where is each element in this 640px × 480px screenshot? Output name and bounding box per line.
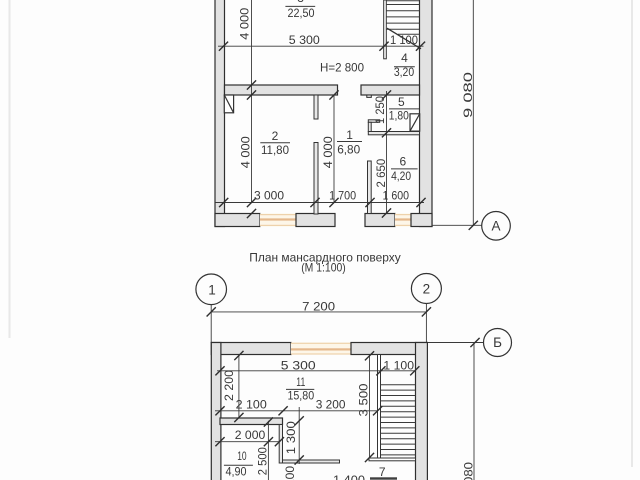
svg-text:3: 3 (297, 0, 304, 5)
svg-text:1 100: 1 100 (390, 33, 418, 47)
svg-text:9 080: 9 080 (461, 72, 475, 118)
svg-text:Б: Б (493, 335, 502, 350)
svg-text:3 200: 3 200 (316, 398, 346, 412)
svg-text:7: 7 (379, 465, 386, 479)
svg-text:4: 4 (401, 51, 408, 65)
svg-text:9 080: 9 080 (461, 462, 475, 480)
svg-text:3,20: 3,20 (394, 65, 415, 79)
svg-text:1,80: 1,80 (389, 108, 409, 122)
svg-text:1 100: 1 100 (383, 358, 414, 372)
svg-text:2 500: 2 500 (256, 447, 270, 475)
svg-text:1 200: 1 200 (283, 466, 297, 480)
svg-text:4 000: 4 000 (238, 7, 252, 39)
svg-text:2: 2 (423, 281, 431, 296)
svg-text:1: 1 (346, 128, 353, 142)
svg-text:1 600: 1 600 (383, 188, 410, 202)
svg-text:2 200: 2 200 (222, 370, 236, 401)
svg-text:3 000: 3 000 (254, 188, 284, 202)
svg-text:2 100: 2 100 (236, 398, 268, 412)
svg-text:5: 5 (398, 95, 405, 109)
svg-text:А: А (491, 219, 500, 234)
svg-text:1 700: 1 700 (329, 188, 356, 202)
svg-text:2 000: 2 000 (235, 428, 266, 442)
svg-text:11: 11 (296, 375, 305, 389)
svg-text:1 400: 1 400 (333, 473, 365, 480)
svg-text:3 500: 3 500 (357, 383, 371, 416)
svg-text:4 000: 4 000 (321, 136, 335, 168)
svg-text:22,50: 22,50 (288, 6, 315, 20)
svg-text:10: 10 (237, 449, 247, 463)
svg-text:11,80: 11,80 (261, 143, 289, 157)
svg-text:1 300: 1 300 (284, 421, 298, 454)
svg-text:Н=2 800: Н=2 800 (320, 61, 364, 75)
svg-text:6,80: 6,80 (337, 143, 360, 157)
svg-text:5 300: 5 300 (281, 358, 316, 372)
svg-text:4,90: 4,90 (226, 464, 247, 478)
svg-text:15,80: 15,80 (287, 389, 314, 403)
svg-text:1: 1 (208, 282, 216, 297)
svg-text:1 250: 1 250 (373, 96, 387, 124)
svg-text:6: 6 (399, 154, 406, 168)
svg-text:7 200: 7 200 (302, 299, 335, 313)
svg-text:(М 1:100): (М 1:100) (301, 261, 346, 275)
svg-text:2: 2 (272, 129, 279, 143)
svg-text:4,20: 4,20 (391, 169, 411, 183)
svg-text:4 000: 4 000 (239, 136, 253, 168)
svg-text:2 650: 2 650 (374, 158, 388, 187)
svg-text:5 300: 5 300 (289, 33, 320, 47)
